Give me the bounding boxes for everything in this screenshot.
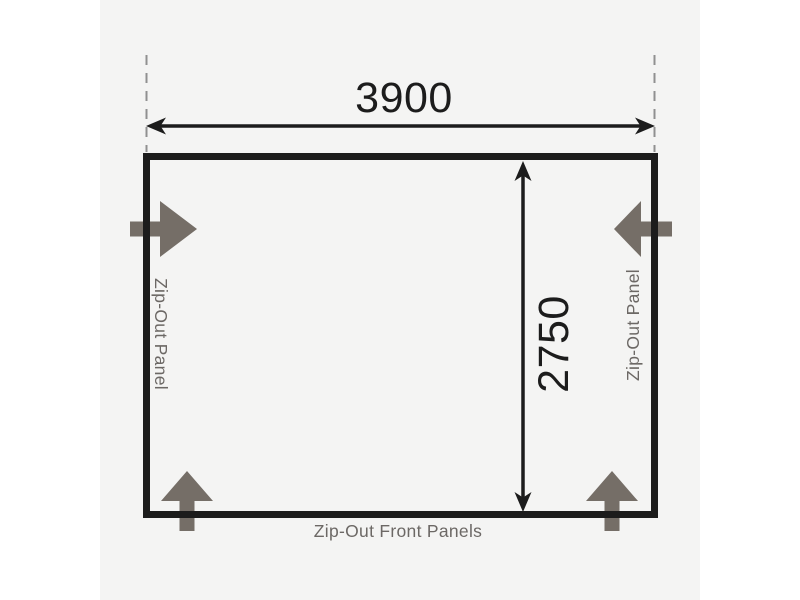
awning-floorplan-diagram: 3900 2750 Zip-Out Panel Zip-Out Panel Zi… xyxy=(0,0,800,600)
zip-out-panel-right-label: Zip-Out Panel xyxy=(623,269,643,381)
diagram-canvas: 3900 2750 Zip-Out Panel Zip-Out Panel Zi… xyxy=(0,0,800,600)
zip-out-panel-left-label: Zip-Out Panel xyxy=(151,278,171,390)
depth-dimension-label: 2750 xyxy=(530,295,578,393)
width-dimension-label: 3900 xyxy=(355,74,453,122)
zip-out-front-panels-label: Zip-Out Front Panels xyxy=(314,521,482,541)
